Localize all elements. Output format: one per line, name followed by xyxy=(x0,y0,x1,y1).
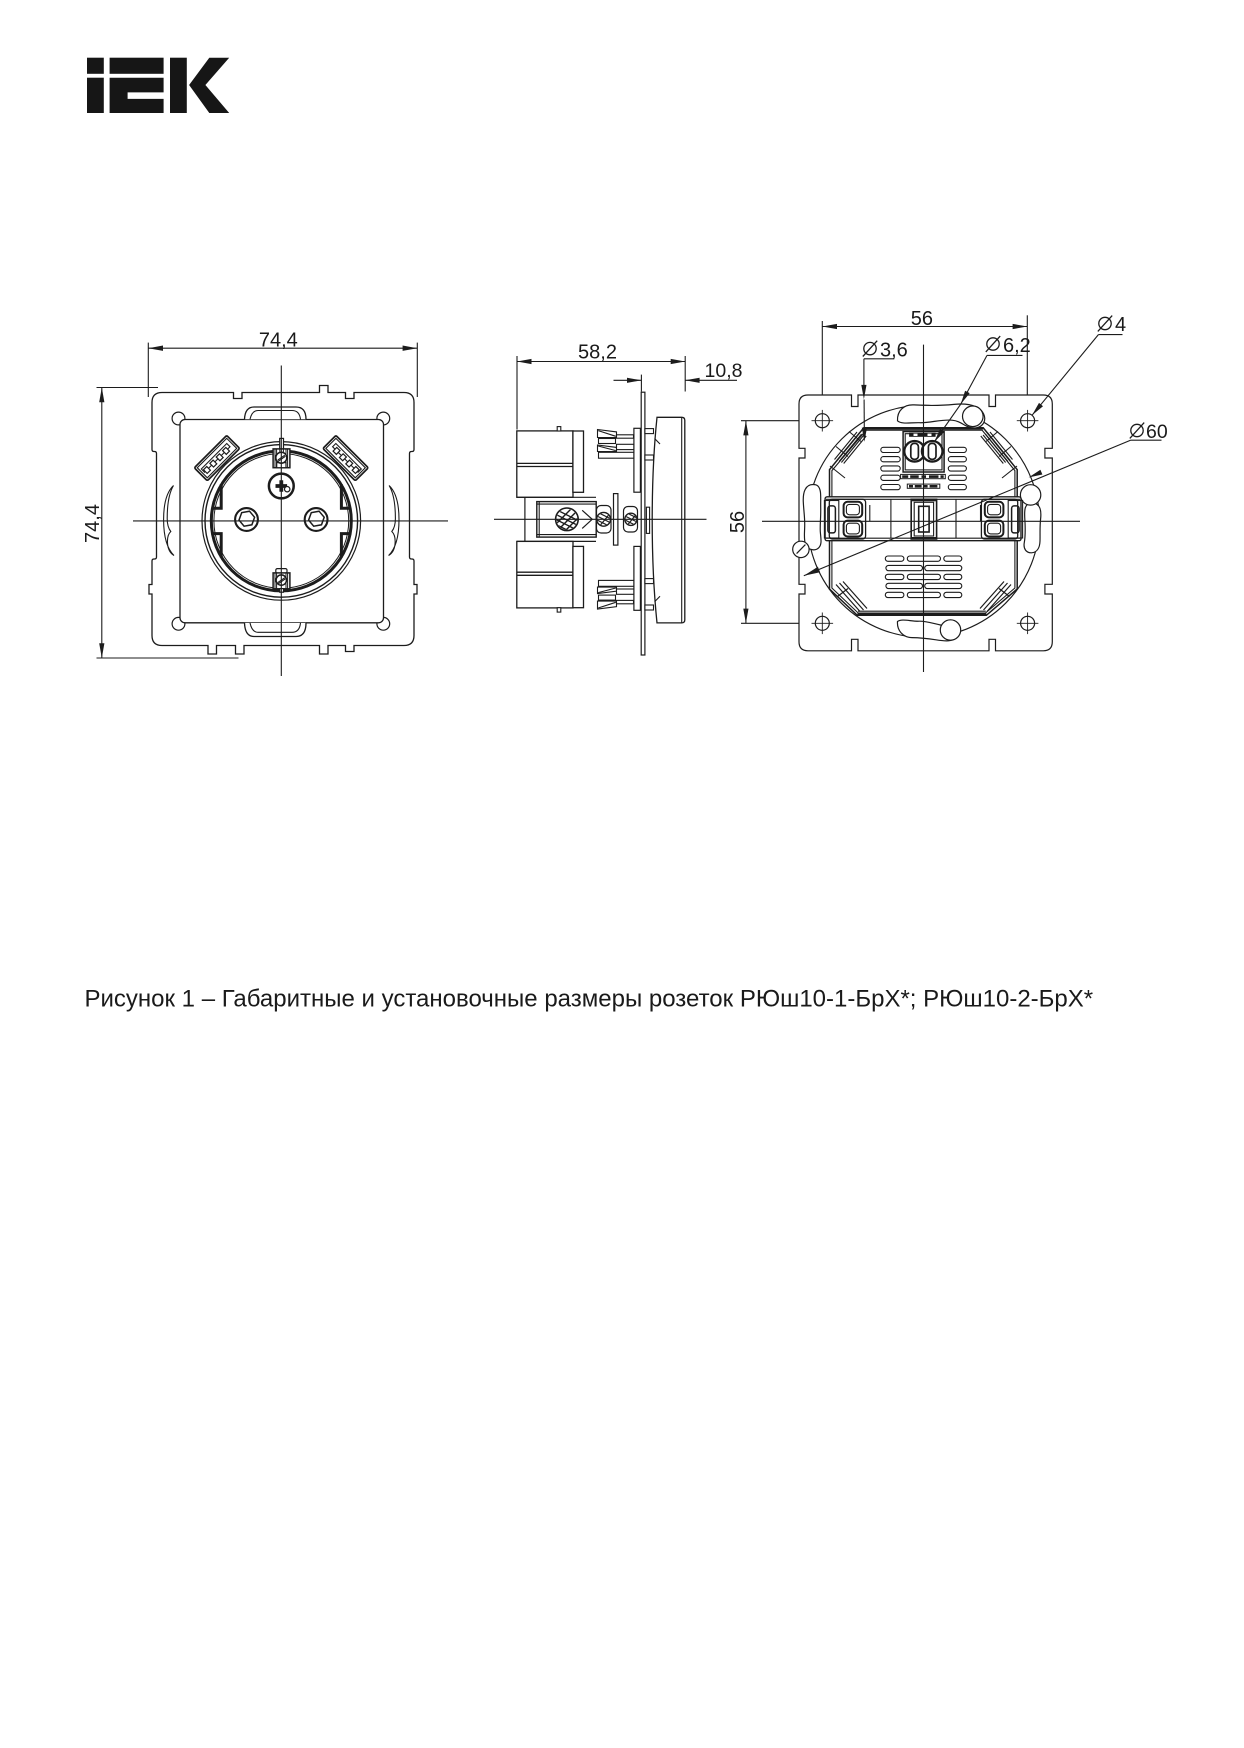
svg-text:74,4: 74,4 xyxy=(82,504,104,543)
svg-text:74,4: 74,4 xyxy=(259,329,298,351)
svg-text:Рисунок 1 – Габаритные и устан: Рисунок 1 – Габаритные и установочные ра… xyxy=(85,986,1094,1013)
svg-text:56: 56 xyxy=(911,308,933,330)
svg-text:10,8: 10,8 xyxy=(705,360,743,382)
svg-text:3,6: 3,6 xyxy=(880,339,908,361)
svg-text:60: 60 xyxy=(1146,421,1168,443)
svg-text:58,2: 58,2 xyxy=(578,342,617,364)
svg-text:4: 4 xyxy=(1115,314,1126,336)
svg-text:56: 56 xyxy=(727,511,749,533)
svg-text:6,2: 6,2 xyxy=(1003,335,1031,357)
